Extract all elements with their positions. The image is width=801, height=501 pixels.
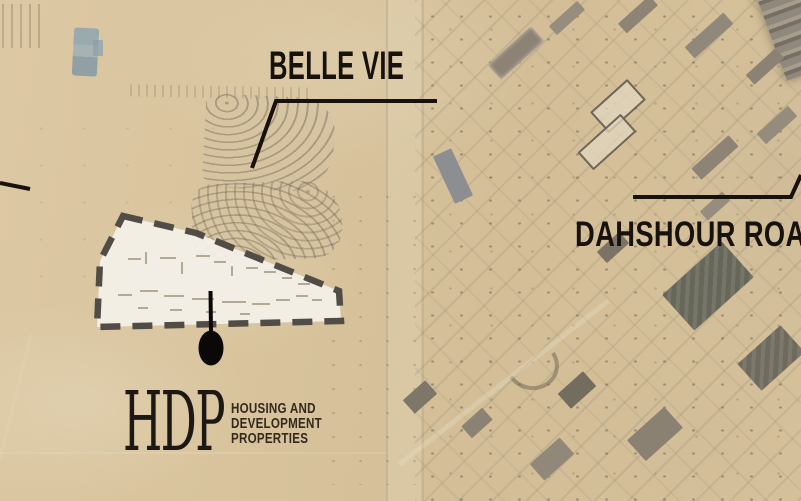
- hdp-logo-text-line1: HOUSING AND: [231, 402, 322, 417]
- hdp-logo-text-line3: PROPERTIES: [231, 432, 322, 447]
- blue-roof-structure-small: [93, 40, 103, 56]
- belle-vie-development-upper: [202, 93, 337, 194]
- hdp-logo: HDP HOUSING AND DEVELOPMENT PROPERTIES: [123, 382, 343, 472]
- hdp-logo-text: HOUSING AND DEVELOPMENT PROPERTIES: [231, 402, 322, 447]
- belle-vie-label: BELLE VIE: [269, 46, 404, 86]
- hdp-logo-text-line2: DEVELOPMENT: [231, 417, 322, 432]
- belle-vie-development-lower: [191, 179, 344, 262]
- dahshour-road-label: DAHSHOUR ROAD: [575, 217, 801, 252]
- hdp-logo-acronym: HDP: [123, 382, 224, 464]
- satellite-map: BELLE VIE DAHSHOUR ROAD HDP HOUSING AND …: [0, 0, 801, 501]
- edge-structures: [2, 4, 40, 48]
